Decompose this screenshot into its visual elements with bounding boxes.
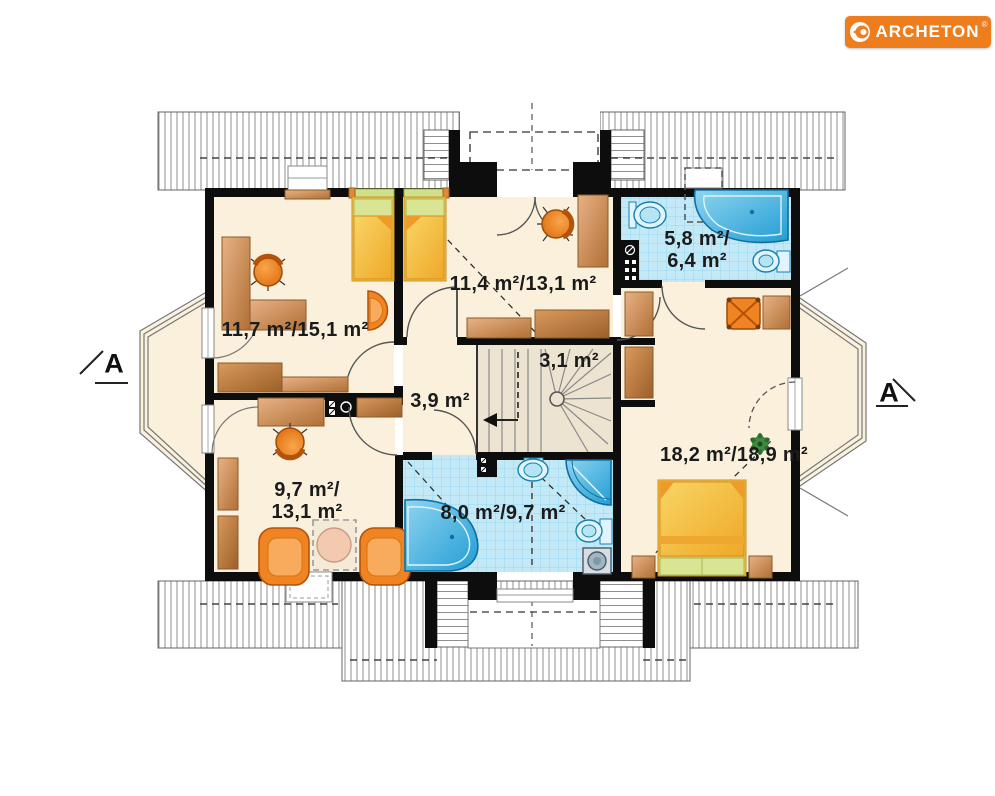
side-table — [763, 296, 790, 329]
floor-bay-left — [140, 292, 210, 492]
armchair-right — [360, 528, 410, 585]
floor-plan-page: 11,7 m²/15,1 m² 11,4 m²/13,1 m² 5,8 m²/6… — [0, 0, 995, 796]
wardrobe — [535, 310, 609, 338]
vent-block-bathroom-bottom — [477, 455, 497, 477]
label-bedroom-right: 18,2 m²/18,9 m² — [660, 444, 808, 466]
label-hallway: 3,9 m² — [410, 390, 470, 412]
label-bedroom-top-middle: 11,4 m²/13,1 m² — [450, 273, 597, 295]
kitchen-counter — [258, 398, 324, 426]
wardrobe — [218, 516, 238, 569]
toilet — [576, 519, 612, 544]
washbasin — [518, 458, 548, 481]
roof-box-bottom-left — [437, 581, 468, 647]
floor-plan-drawing — [0, 0, 995, 796]
coffee-table — [313, 520, 356, 570]
roof-band-bottom-right — [690, 581, 858, 648]
kitchen-counter — [357, 398, 402, 417]
dormer-top-center — [449, 100, 611, 192]
vent-block-bathroom-top — [621, 240, 639, 287]
wardrobe — [625, 292, 653, 336]
section-marker-left: A — [104, 349, 124, 380]
wardrobe — [625, 347, 653, 398]
label-room-bottom-left: 9,7 m²/13,1 m² — [271, 479, 342, 523]
low-shelf — [282, 377, 348, 392]
section-marker-right: A — [879, 378, 899, 409]
washbasin — [629, 202, 666, 228]
label-bathroom-top: 5,8 m²/6,4 m² — [664, 228, 729, 272]
wardrobe — [467, 318, 531, 338]
label-staircase: 3,1 m² — [539, 350, 599, 372]
desk — [222, 237, 250, 330]
archeton-logo: ARCHETON ® — [845, 16, 991, 48]
logo-sun-icon — [849, 21, 871, 43]
roof-box-top-right — [611, 130, 644, 180]
armchair-left — [259, 528, 309, 585]
roof-window-top — [285, 166, 330, 199]
desk — [578, 195, 608, 267]
nightstand — [749, 556, 772, 578]
vent-block-kitchenette — [325, 398, 357, 417]
label-bedroom-top-left: 11,7 m²/15,1 m² — [222, 319, 369, 341]
wardrobe — [218, 458, 238, 510]
logo-registered-mark: ® — [982, 20, 988, 29]
sideboard — [218, 363, 282, 392]
roof-box-top-left — [424, 130, 449, 180]
toilet — [753, 250, 790, 272]
single-bed — [349, 188, 394, 281]
nightstand — [632, 556, 655, 578]
label-bathroom-bottom: 8,0 m²/9,7 m² — [440, 502, 565, 524]
washing-machine — [583, 548, 611, 574]
roof-box-bottom-right — [600, 581, 643, 647]
side-chair — [727, 298, 761, 330]
single-bed — [404, 188, 449, 281]
logo-text: ARCHETON — [876, 22, 980, 42]
